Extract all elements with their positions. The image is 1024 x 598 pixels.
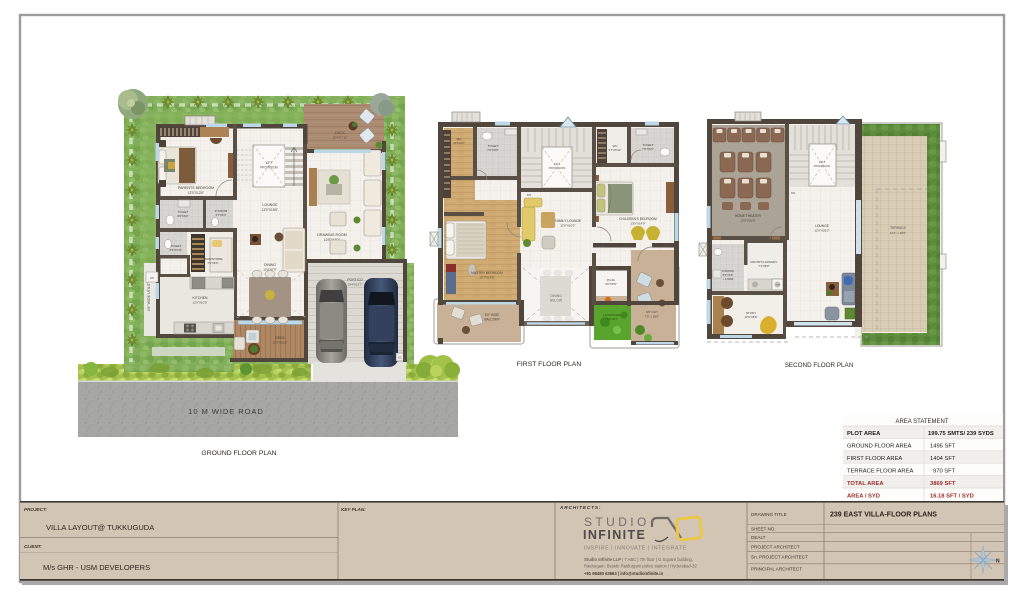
svg-text:12'0"X10'2": 12'0"X10'2" xyxy=(560,224,575,228)
svg-text:5'7"X6'10": 5'7"X6'10" xyxy=(609,148,622,152)
svg-text:7'1"X8'0": 7'1"X8'0" xyxy=(758,264,769,268)
svg-text:INFINITE: INFINITE xyxy=(583,528,646,542)
svg-text:5'6"X6'6": 5'6"X6'6" xyxy=(723,273,734,277)
svg-text:13'4"X7'11": 13'4"X7'11" xyxy=(332,136,347,140)
svg-text:7'0"X9'5": 7'0"X9'5" xyxy=(487,148,499,152)
svg-text:WM: WM xyxy=(776,285,780,287)
svg-text:6'0"X6'9": 6'0"X6'9" xyxy=(605,282,617,286)
svg-text:13'4"X13'7": 13'4"X13'7" xyxy=(347,283,362,287)
svg-text:7'0"X6'6": 7'0"X6'6" xyxy=(642,147,654,151)
svg-text:+ 1.5MW: + 1.5MW xyxy=(723,277,734,281)
svg-text:ARCHITECTS:: ARCHITECTS: xyxy=(559,505,601,511)
svg-text:HOME THEATER: HOME THEATER xyxy=(735,214,762,218)
svg-text:LOUNGE: LOUNGE xyxy=(262,203,278,207)
svg-text:PORTICO: PORTICO xyxy=(347,278,363,282)
svg-text:DINING: DINING xyxy=(264,263,276,267)
svg-text:DINING: DINING xyxy=(550,294,562,298)
svg-text:SECOND FLOOR PLAN: SECOND FLOOR PLAN xyxy=(785,362,854,369)
svg-text:DEALT: DEALT xyxy=(751,535,766,540)
svg-text:12'0"X8'9": 12'0"X8'9" xyxy=(744,315,757,319)
svg-text:DECK: DECK xyxy=(275,336,285,340)
svg-text:Raidurgam, Beside Raidurgam po: Raidurgam, Beside Raidurgam police stati… xyxy=(584,564,697,569)
svg-text:N: N xyxy=(996,559,1000,565)
svg-text:12'0"X12'6": 12'0"X12'6" xyxy=(188,191,204,195)
svg-text:PRINCIPAL ARCHITECT: PRINCIPAL ARCHITECT xyxy=(751,567,802,572)
svg-text:PLOT AREA: PLOT AREA xyxy=(847,431,881,437)
svg-text:DRAWING TITLE: DRAWING TITLE xyxy=(751,512,787,517)
svg-text:199.75 SMTS/ 239 SYDS: 199.75 SMTS/ 239 SYDS xyxy=(928,431,994,437)
svg-text:CHILDREN'S BEDROOM: CHILDREN'S BEDROOM xyxy=(619,217,657,221)
svg-text:AREA / SYD: AREA / SYD xyxy=(847,494,880,500)
svg-text:12'0"X10'0": 12'0"X10'0" xyxy=(192,301,207,305)
svg-text:M/s GHR - USM DEVELOPERS: M/s GHR - USM DEVELOPERS xyxy=(43,563,150,572)
svg-text:DECK: DECK xyxy=(335,131,345,135)
svg-text:12'4" x 38'0": 12'4" x 38'0" xyxy=(890,231,906,235)
svg-text:1404 SFT: 1404 SFT xyxy=(930,456,956,462)
svg-text:970 SFT: 970 SFT xyxy=(933,468,956,474)
svg-text:Sn. PROJECT ARCHITECT: Sn. PROJECT ARCHITECT xyxy=(751,555,808,560)
svg-text:13'0"X20'0": 13'0"X20'0" xyxy=(740,219,755,223)
svg-text:COURT: COURT xyxy=(607,317,618,321)
svg-text:12'0"X10'0": 12'0"X10'0" xyxy=(272,341,287,345)
svg-text:DN: DN xyxy=(791,191,795,195)
svg-text:TERRACE FLOOR AREA: TERRACE FLOOR AREA xyxy=(847,468,913,474)
svg-text:4'7"X6'3": 4'7"X6'3" xyxy=(215,213,226,217)
svg-text:VILLA LAYOUT@ TUKKUGUDA: VILLA LAYOUT@ TUKKUGUDA xyxy=(46,523,154,532)
svg-text:6'0" WIDE: 6'0" WIDE xyxy=(485,313,500,317)
svg-text:MASTER BEDROOM: MASTER BEDROOM xyxy=(471,271,503,275)
svg-text:DN: DN xyxy=(527,193,531,197)
svg-text:KITCHEN: KITCHEN xyxy=(193,296,208,300)
svg-text:DRAWING ROOM: DRAWING ROOM xyxy=(317,233,346,237)
svg-text:PROVISION: PROVISION xyxy=(549,166,566,170)
svg-text:12'0"X15'6": 12'0"X15'6" xyxy=(262,208,278,212)
svg-text:3869 SFT: 3869 SFT xyxy=(930,481,956,487)
svg-text:CLIENT:: CLIENT: xyxy=(24,544,42,549)
svg-text:KEY PLAN:: KEY PLAN: xyxy=(341,507,366,512)
svg-text:Studio Infinite LLP | 7 ABC |: Studio Infinite LLP | 7 ABC | 7th floor … xyxy=(584,557,693,562)
svg-text:LOUNGE: LOUNGE xyxy=(815,224,830,228)
svg-text:FIRST FLOOR AREA: FIRST FLOOR AREA xyxy=(847,456,902,462)
svg-text:PARENTS BEDROOM: PARENTS BEDROOM xyxy=(178,186,214,190)
svg-text:INSPIRE | INNOVATE | INTEG: INSPIRE | INNOVATE | INTEGRATE xyxy=(584,546,687,552)
svg-text:FIRST FLOOR PLAN: FIRST FLOOR PLAN xyxy=(517,361,582,368)
svg-text:PROJECT:: PROJECT: xyxy=(24,507,47,512)
svg-text:GROUND FLOOR PLAN: GROUND FLOOR PLAN xyxy=(201,450,276,457)
svg-text:FAMILY LOUNGE: FAMILY LOUNGE xyxy=(555,219,582,223)
svg-text:SHEET NO.: SHEET NO. xyxy=(751,527,776,532)
svg-text:10 M WIDE ROAD: 10 M WIDE ROAD xyxy=(188,407,263,416)
svg-text:LIFT: LIFT xyxy=(266,161,273,165)
svg-text:7'6"X6'6": 7'6"X6'6" xyxy=(207,261,218,265)
svg-text:239 EAST VILLA-FLOOR PLANS: 239 EAST VILLA-FLOOR PLANS xyxy=(830,512,937,519)
svg-text:7'0" x 16'0": 7'0" x 16'0" xyxy=(645,315,659,319)
svg-text:P.ROOM: P.ROOM xyxy=(722,269,734,273)
svg-text:STUDIO: STUDIO xyxy=(584,515,650,529)
svg-text:16.18 SFT / SYD: 16.18 SFT / SYD xyxy=(930,494,974,500)
svg-text:TOTAL AREA: TOTAL AREA xyxy=(847,481,884,487)
svg-text:PROJECT ARCHITECT: PROJECT ARCHITECT xyxy=(751,545,800,550)
svg-text:6'6"X3'10": 6'6"X3'10" xyxy=(170,248,183,252)
svg-text:8'6"X6'0": 8'6"X6'0" xyxy=(177,214,188,218)
svg-text:DN: DN xyxy=(150,276,154,280)
svg-text:PROVISION: PROVISION xyxy=(260,166,278,170)
svg-text:4'6" WIDE UTILITY: 4'6" WIDE UTILITY xyxy=(147,280,151,311)
svg-text:11'X12'2": 11'X12'2" xyxy=(453,141,465,145)
svg-text:+91 98480 63663 | info@studi: +91 98480 63663 | info@studioinfinite.in xyxy=(584,571,664,576)
svg-text:13'9"X14'0": 13'9"X14'0" xyxy=(630,222,645,226)
svg-text:1495 SFT: 1495 SFT xyxy=(930,444,956,450)
svg-text:AREA STATEMENT: AREA STATEMENT xyxy=(895,419,948,425)
svg-text:12'0"X20'2": 12'0"X20'2" xyxy=(814,229,829,233)
svg-text:TERRACE: TERRACE xyxy=(890,226,907,230)
svg-text:GROUND FLOOR AREA: GROUND FLOOR AREA xyxy=(847,444,912,450)
svg-text:SIT OUT: SIT OUT xyxy=(646,310,658,314)
svg-text:PROVISION: PROVISION xyxy=(814,164,831,168)
svg-text:BELOW: BELOW xyxy=(550,299,563,303)
svg-text:12'7"X17'6": 12'7"X17'6" xyxy=(479,276,494,280)
svg-text:BALCONY: BALCONY xyxy=(484,318,500,322)
